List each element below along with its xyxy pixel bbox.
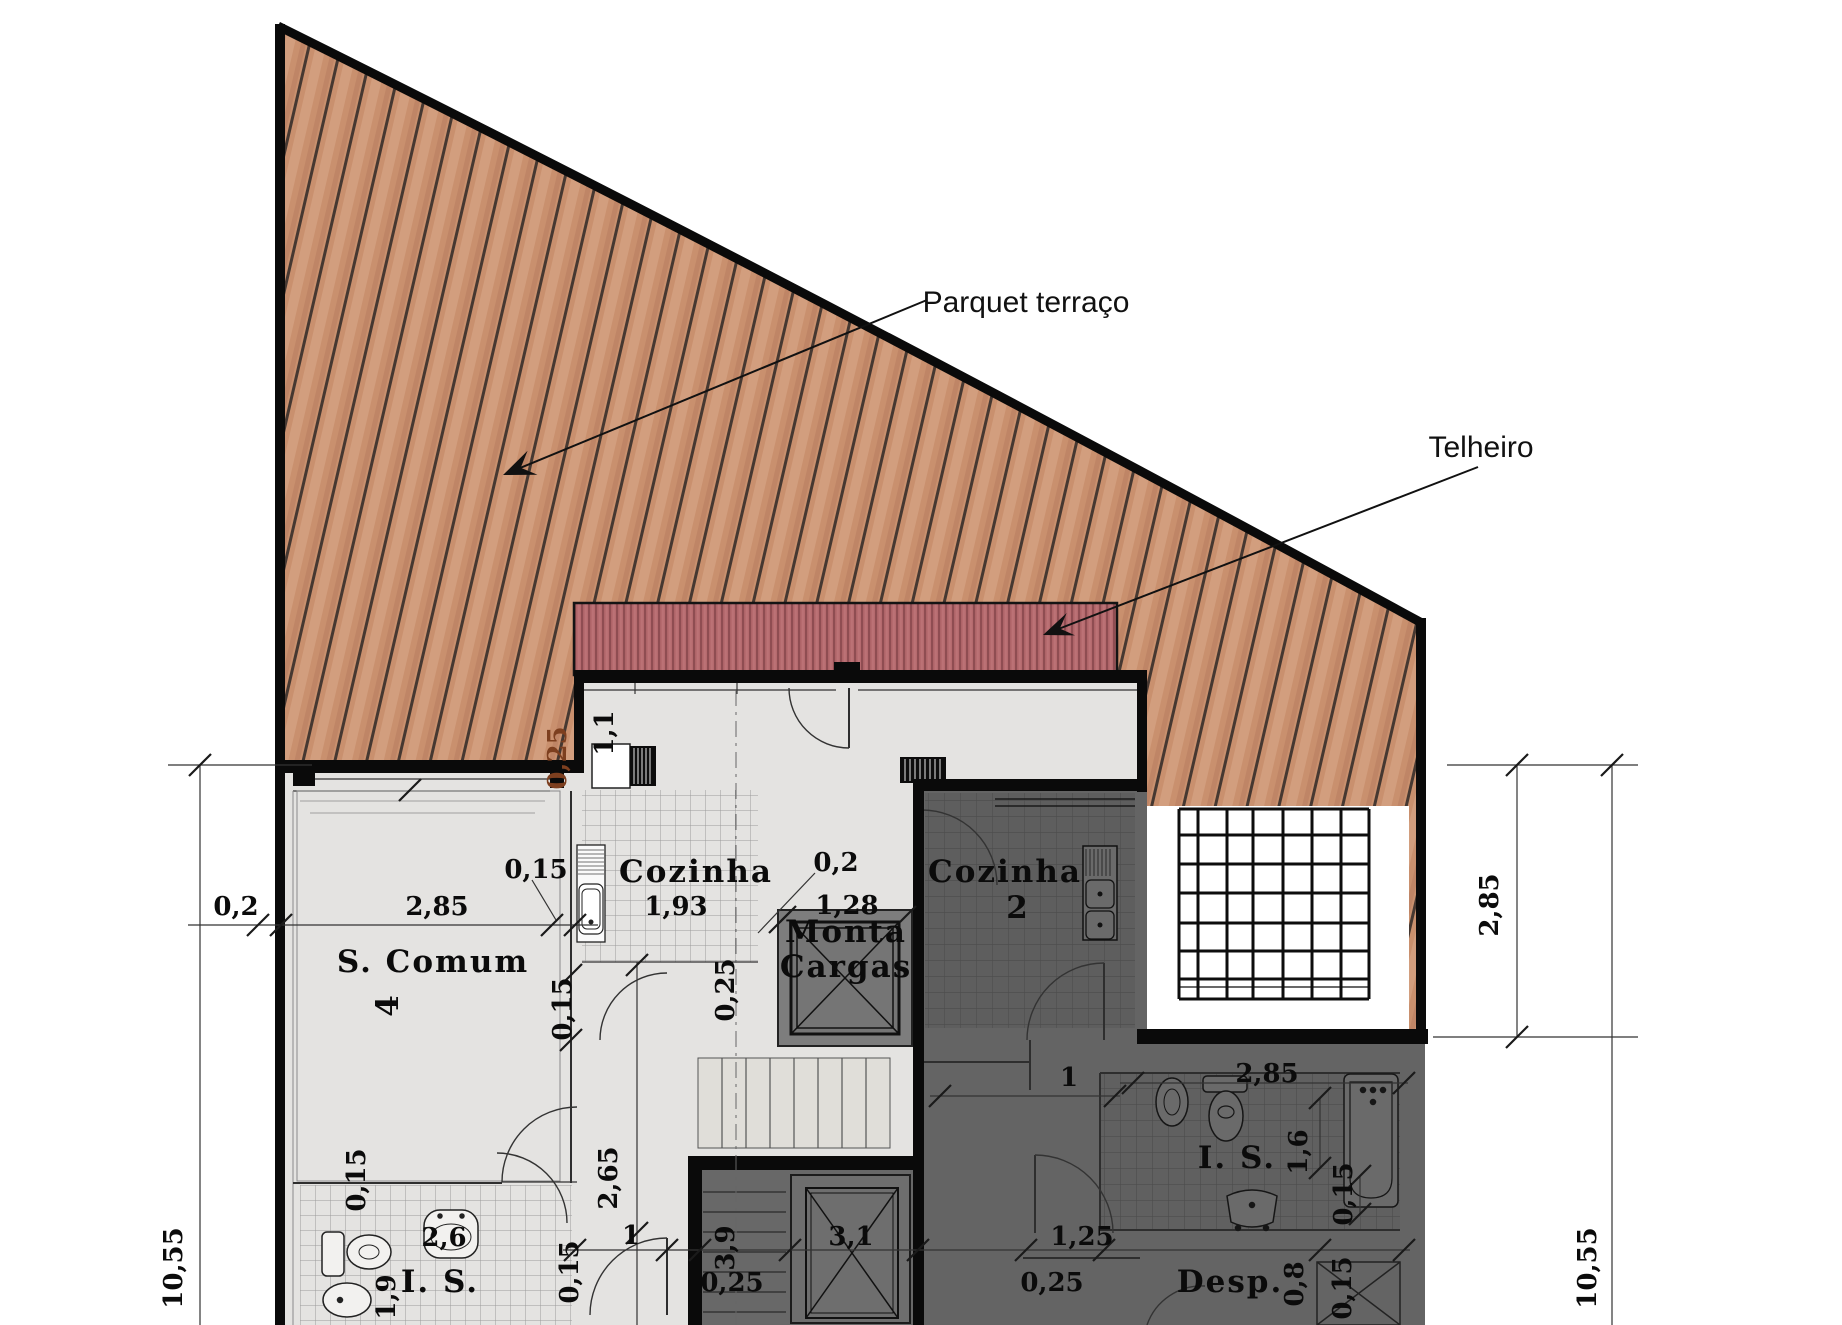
bidet-right xyxy=(1156,1078,1188,1126)
toilet-tank-left xyxy=(322,1232,344,1276)
dim-2-65: 2,65 xyxy=(594,1146,624,1209)
room-number-s-comum: 4 xyxy=(370,993,406,1017)
room-label-monta-2: Cargas xyxy=(780,949,912,985)
dim-3-9: 3,9 xyxy=(711,1225,741,1270)
dim-0-25-stair: 0,25 xyxy=(700,1268,763,1298)
dim-0-25-kitchen: 0,25 xyxy=(711,958,741,1021)
annotation-telheiro: Telheiro xyxy=(1428,431,1533,464)
annotation-parquet: Parquet terraço xyxy=(923,286,1130,319)
dim-0-25-dark: 0,25 xyxy=(1020,1268,1083,1298)
dim-0-15-desp: 0,15 xyxy=(1328,1256,1358,1319)
dim-0-15-door: 0,15 xyxy=(555,1240,585,1303)
dim-1-6: 1,6 xyxy=(1284,1129,1314,1174)
dim-2-85-left: 2,85 xyxy=(405,892,468,922)
floor-plan-page: S. Comum 4 Cozinha 1,93 Monta Cargas Coz… xyxy=(0,0,1842,1325)
dim-0-15-bath: 0,15 xyxy=(1329,1162,1359,1225)
floor-plan-canvas: S. Comum 4 Cozinha 1,93 Monta Cargas Coz… xyxy=(0,0,1842,1325)
dim-2-85-dark: 2,85 xyxy=(1235,1059,1298,1089)
room-label-s-comum: S. Comum xyxy=(337,944,529,980)
bidet-left xyxy=(323,1283,371,1317)
room-number-cozinha-right: 2 xyxy=(1006,890,1030,926)
dim-0-2-left: 0,2 xyxy=(213,892,258,922)
dim-2-85-right: 2,85 xyxy=(1475,873,1505,936)
dim-10-55-left: 10,55 xyxy=(159,1227,189,1308)
room-label-cozinha-right: Cozinha xyxy=(928,854,1082,890)
dim-1-center: 1 xyxy=(622,1221,640,1251)
toilet-right xyxy=(1209,1091,1243,1141)
dim-1-9: 1,9 xyxy=(372,1274,402,1319)
room-label-desp: Desp. xyxy=(1177,1264,1284,1300)
dim-0-25-brown: 0,25 xyxy=(543,726,573,789)
dim-0-15-hall: 0,15 xyxy=(548,977,578,1040)
dim-0-15-is: 0,15 xyxy=(342,1148,372,1211)
dim-0-8: 0,8 xyxy=(1280,1261,1310,1306)
dim-10-55-right: 10,55 xyxy=(1573,1227,1603,1308)
room-number-cozinha-left: 1,93 xyxy=(644,892,707,922)
dim-1-25: 1,25 xyxy=(1050,1222,1113,1252)
dim-0-15-top: 0,15 xyxy=(504,855,567,885)
dim-1-dark: 1 xyxy=(1060,1063,1078,1093)
room-label-cozinha-left: Cozinha xyxy=(619,854,773,890)
room-label-is-right: I. S. xyxy=(1198,1140,1276,1176)
washbasin-right xyxy=(1227,1190,1277,1227)
dim-1-1: 1,1 xyxy=(590,710,620,755)
dim-3-1: 3,1 xyxy=(828,1222,873,1252)
dim-0-2-center: 0,2 xyxy=(813,848,858,878)
toilet-left xyxy=(347,1235,391,1269)
dim-2-6: 2,6 xyxy=(421,1223,466,1253)
dim-1-28: 1,28 xyxy=(815,891,878,921)
room-label-is-left: I. S. xyxy=(401,1264,479,1300)
skylight-grid xyxy=(1143,806,1409,1031)
